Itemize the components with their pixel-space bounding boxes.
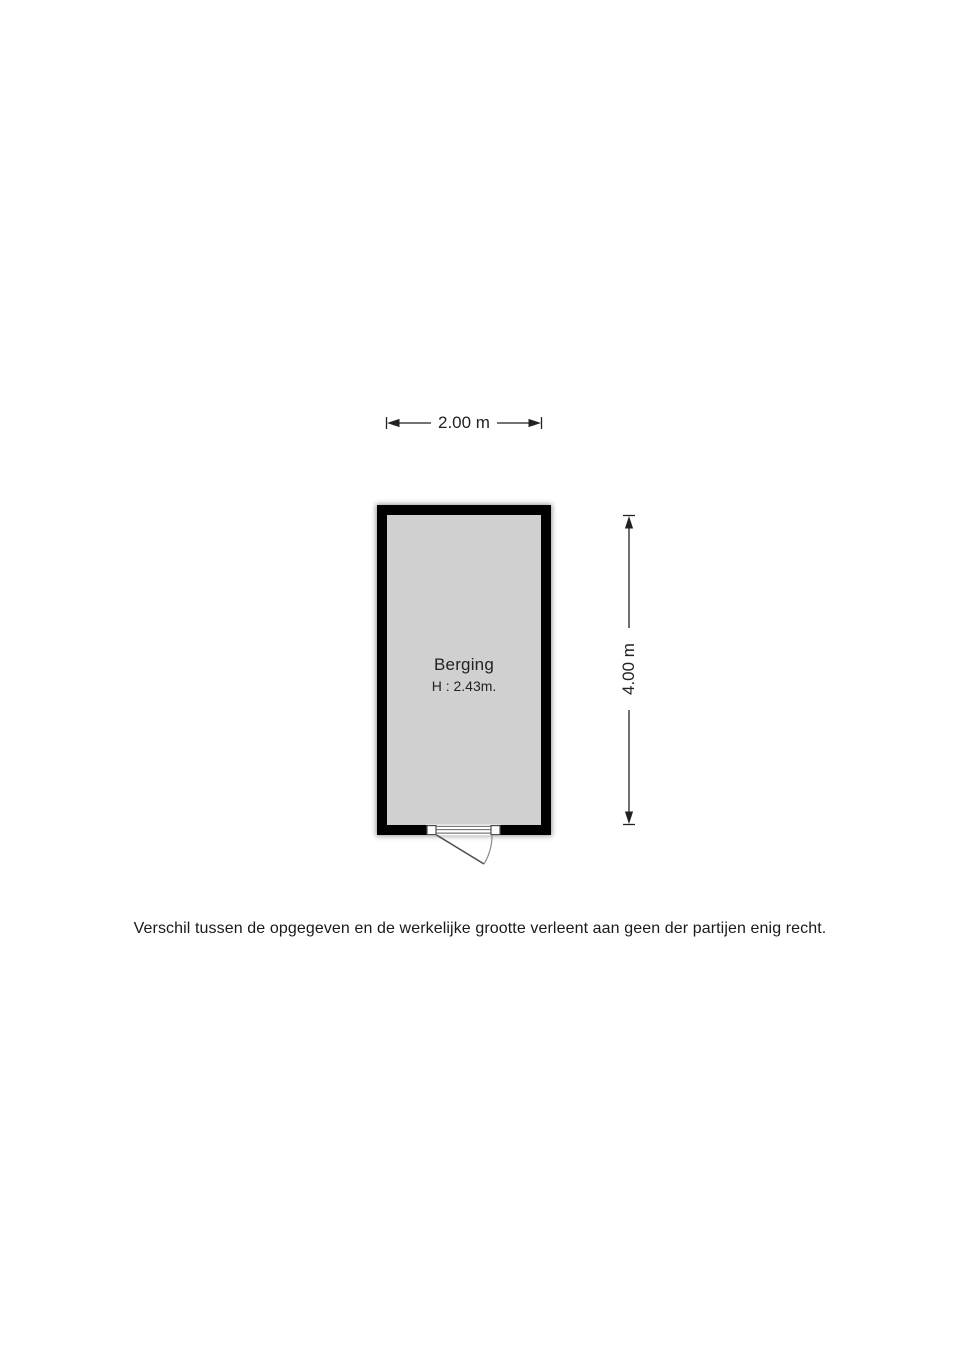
room-label: Berging H : 2.43m. [387,655,541,695]
room-name-label: Berging [387,655,541,675]
floorplan-canvas: Berging H : 2.43m. [0,0,960,1358]
disclaimer-text: Verschil tussen de opgegeven en de werke… [0,920,960,938]
depth-dimension-label: 4.00 m [618,628,640,710]
room-ceiling-height-label: H : 2.43m. [387,678,541,695]
width-dimension-label: 2.00 m [433,413,495,433]
